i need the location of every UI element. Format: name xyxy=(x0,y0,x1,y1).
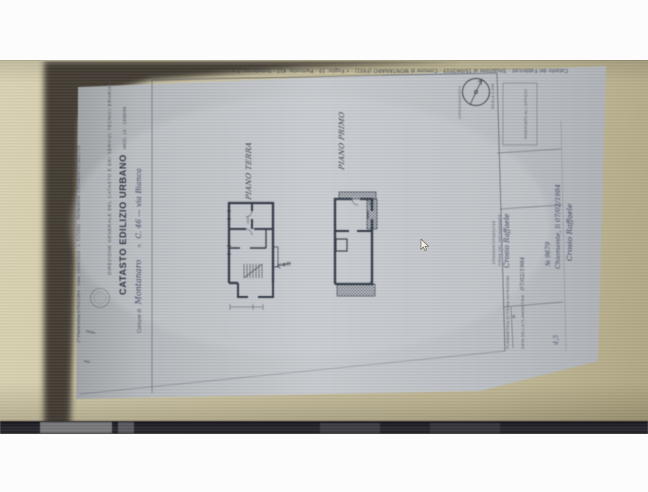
declarant-fiscal-code: CRSMGN73T16D171S xyxy=(492,221,496,264)
asterisk-mark: ✳ xyxy=(512,314,518,319)
protocol-handwriting: № 9679 xyxy=(545,242,551,266)
plan-terra-room-note: cant. xyxy=(246,215,250,224)
place-date-handwriting: Chiomonte, lì 07/02/1984 xyxy=(555,184,562,269)
first-registration-label: PLANIMETRIA DI PRIMA ISCRIZIONE xyxy=(506,276,510,349)
header-handwritten-row: Comune di Montanaro n. C. 46 — via Bianc… xyxy=(129,168,145,333)
orientation-label: ORIENTAMENTO xyxy=(458,86,462,119)
monitor-bezel-bar xyxy=(0,421,648,434)
plan-primo-label: PIANO PRIMO xyxy=(338,111,345,170)
note-handwriting: 4,5 xyxy=(553,335,559,345)
bezel-highlight xyxy=(430,423,500,433)
header-title-row: CATASTO EDILIZIO URBANOMOD. 13 · 1938/48 xyxy=(114,107,130,295)
bezel-highlight xyxy=(40,422,112,433)
declarant-signature-label: FIRMA DEL DICHIARANTE xyxy=(498,214,502,266)
scale-label: SCALA 1:200 xyxy=(491,83,495,109)
document-photo: Catasto dei Fabbricati - Situazione al 1… xyxy=(0,60,648,434)
comune-label: Comune di xyxy=(137,309,143,333)
mouse-cursor-icon xyxy=(420,239,430,252)
declarant-name-handwriting: Crosio Raffaele xyxy=(504,214,511,268)
plan-date-label: DATA DELLA PLANIMETRIA xyxy=(520,295,525,349)
margin-side-note: Catasto dei Fabbricati - Situazione al 1… xyxy=(178,67,568,72)
address-value-handwriting: C. 46 — via Bianca xyxy=(134,168,143,238)
plan-date-handwriting: 07/02/1984 xyxy=(520,257,526,290)
signature-handwriting: Crosio Raffaele xyxy=(566,204,573,262)
office-box-label: RISERVATO ALL'UFFICIO xyxy=(524,89,528,139)
header-agency-line: DIREZIONE GENERALE DEL CATASTO E DEI SER… xyxy=(108,81,113,275)
bezel-highlight xyxy=(320,423,380,433)
bezel-highlight xyxy=(118,422,134,433)
plan-date-row: DATA DELLA PLANIMETRIA 07/02/1984 xyxy=(512,257,528,349)
plan-terra-label: PIANO TERRA xyxy=(245,141,252,200)
address-label: n. xyxy=(137,243,143,247)
comune-value-handwriting: Montanaro xyxy=(134,260,143,305)
photo-content: Catasto dei Fabbricati - Situazione al 1… xyxy=(0,61,648,434)
page-title: CATASTO EDILIZIO URBANO xyxy=(118,154,128,295)
screen: Catasto dei Fabbricati - Situazione al 1… xyxy=(0,0,648,492)
margin-top-note: 1ª Planimetria 07/02/1984 - Data: 15/04/… xyxy=(77,145,82,343)
mod-label: MOD. 13 · 1938/48 xyxy=(122,107,127,149)
